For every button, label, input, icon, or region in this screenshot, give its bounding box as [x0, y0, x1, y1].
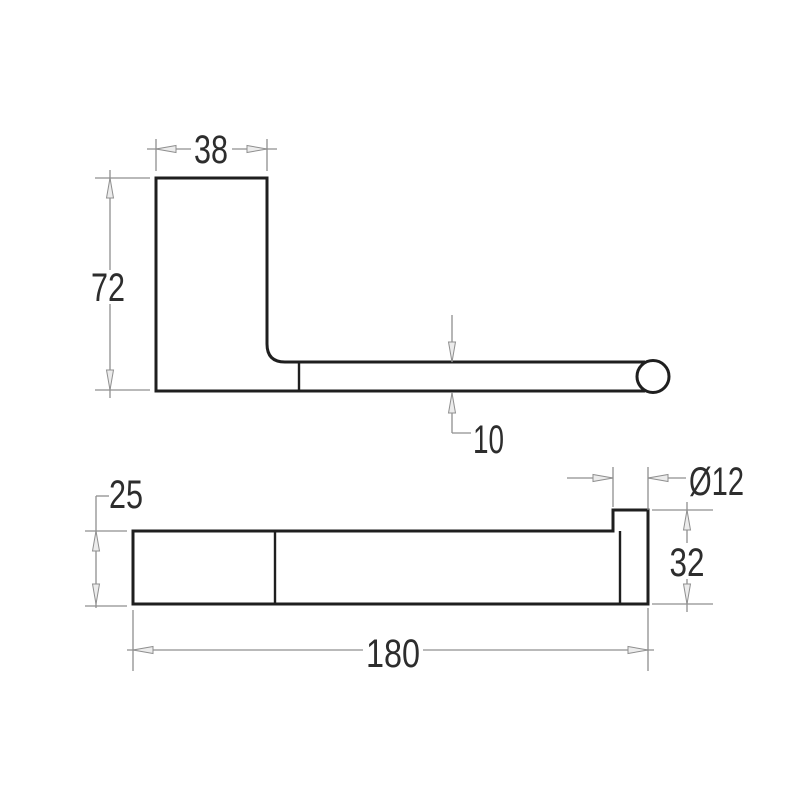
- dim-overall-length: 180: [127, 608, 654, 676]
- arrowhead-down: [93, 584, 100, 604]
- dim-label-rod-diameter: Ø12: [689, 460, 744, 504]
- arrowhead-right: [247, 146, 267, 153]
- plan-view: 25 Ø12 32: [85, 460, 744, 676]
- arrowhead-left: [648, 475, 668, 482]
- side-view-part-outline: [156, 178, 645, 391]
- arrowhead-down: [449, 342, 456, 362]
- arrowhead-up: [107, 178, 114, 198]
- dim-arm-thickness: 10: [449, 315, 505, 462]
- arrowhead-down: [684, 584, 691, 604]
- dim-label-overall-length: 180: [366, 632, 420, 676]
- technical-drawing-canvas: 38 72 10: [0, 0, 800, 800]
- rod-end-circle: [637, 361, 669, 393]
- dim-bracket-height: 72: [89, 170, 150, 398]
- dim-label-bracket-width: 38: [194, 128, 228, 172]
- dim-end-height: 32: [652, 502, 713, 612]
- arrowhead-up: [684, 510, 691, 530]
- plan-view-part-outline: [133, 510, 648, 604]
- dim-label-end-height: 32: [670, 541, 705, 585]
- dim-bracket-width: 38: [147, 128, 277, 172]
- drawing-sheet: 38 72 10: [0, 0, 800, 800]
- arrowhead-up: [449, 393, 456, 413]
- arrowhead-down: [107, 370, 114, 390]
- dim-rod-diameter: Ø12: [567, 460, 744, 510]
- side-profile-view: 38 72 10: [89, 128, 669, 462]
- arrowhead-right: [593, 475, 613, 482]
- arrowhead-left: [156, 146, 176, 153]
- dim-label-plate-depth: 25: [109, 473, 143, 517]
- dim-label-bracket-height: 72: [91, 266, 125, 310]
- arrowhead-up: [93, 531, 100, 551]
- arrowhead-left: [133, 647, 153, 654]
- dim-label-arm-thickness: 10: [473, 418, 504, 462]
- arrowhead-right: [628, 647, 648, 654]
